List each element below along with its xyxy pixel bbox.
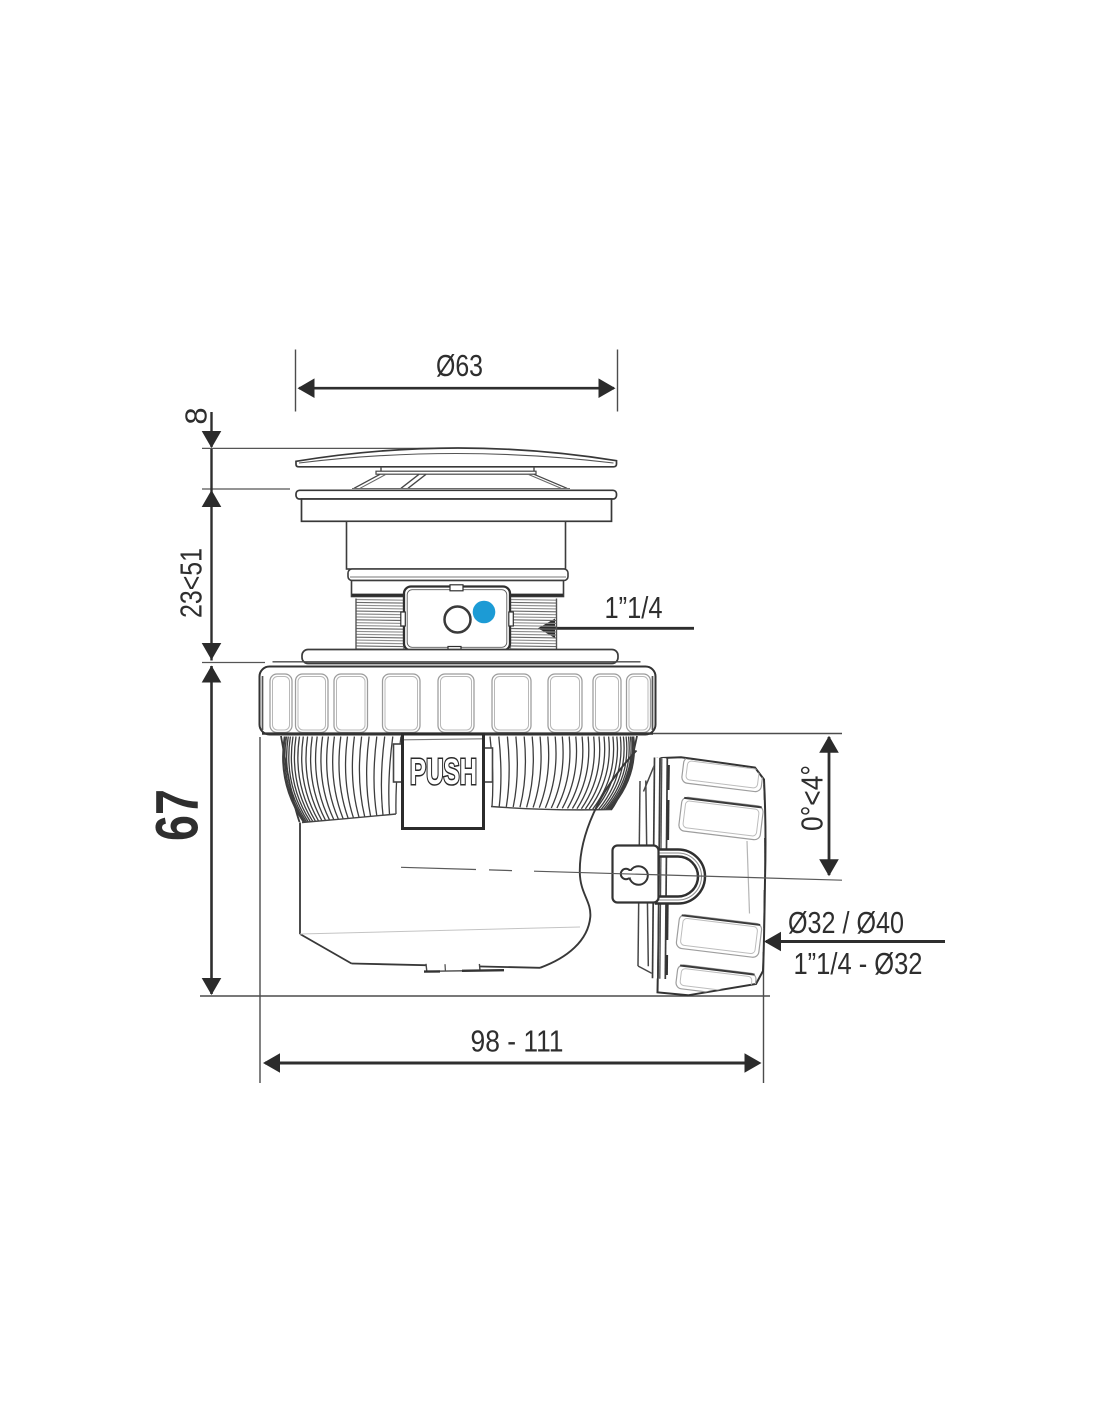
svg-text:98 - 111: 98 - 111	[471, 1024, 564, 1059]
svg-text:67: 67	[144, 789, 211, 841]
svg-text:Ø32 / Ø40: Ø32 / Ø40	[788, 905, 904, 940]
svg-text:Ø63: Ø63	[436, 349, 483, 383]
svg-text:1”1/4 - Ø32: 1”1/4 - Ø32	[794, 946, 923, 981]
svg-text:23<51: 23<51	[174, 548, 209, 618]
svg-text:1”1/4: 1”1/4	[605, 590, 663, 625]
svg-text:PUSH: PUSH	[410, 751, 477, 792]
svg-text:0°<4°: 0°<4°	[795, 765, 830, 831]
svg-text:8: 8	[179, 407, 214, 424]
